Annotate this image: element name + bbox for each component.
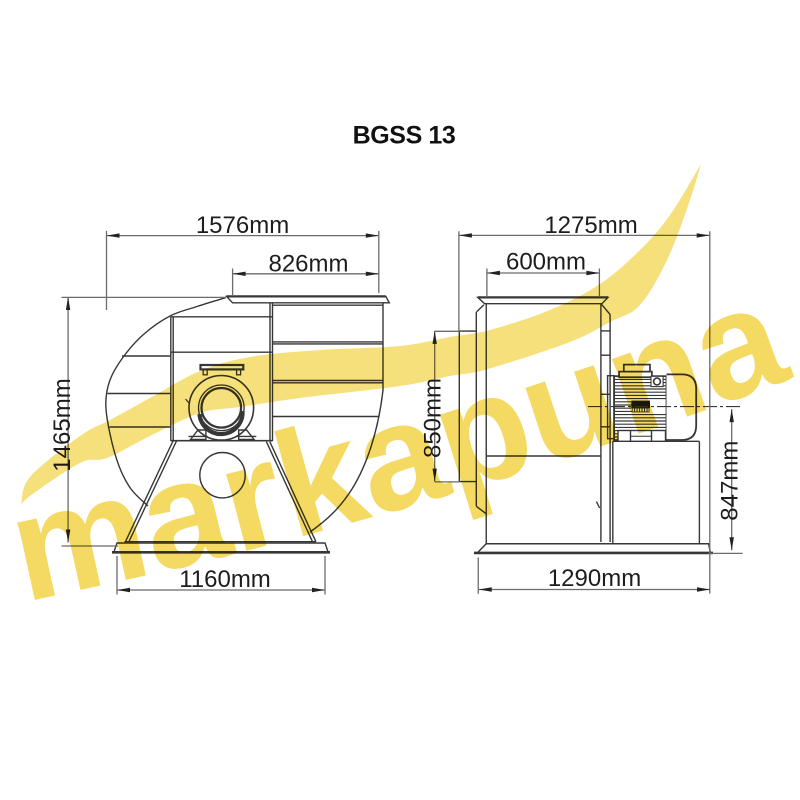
svg-text:BGSS 13: BGSS 13 (353, 122, 456, 150)
svg-text:1576mm: 1576mm (196, 212, 289, 239)
svg-text:826mm: 826mm (268, 251, 348, 278)
svg-text:600mm: 600mm (506, 249, 586, 276)
svg-text:1290mm: 1290mm (548, 565, 641, 592)
svg-text:1275mm: 1275mm (544, 212, 637, 239)
svg-text:847mm: 847mm (717, 441, 744, 521)
